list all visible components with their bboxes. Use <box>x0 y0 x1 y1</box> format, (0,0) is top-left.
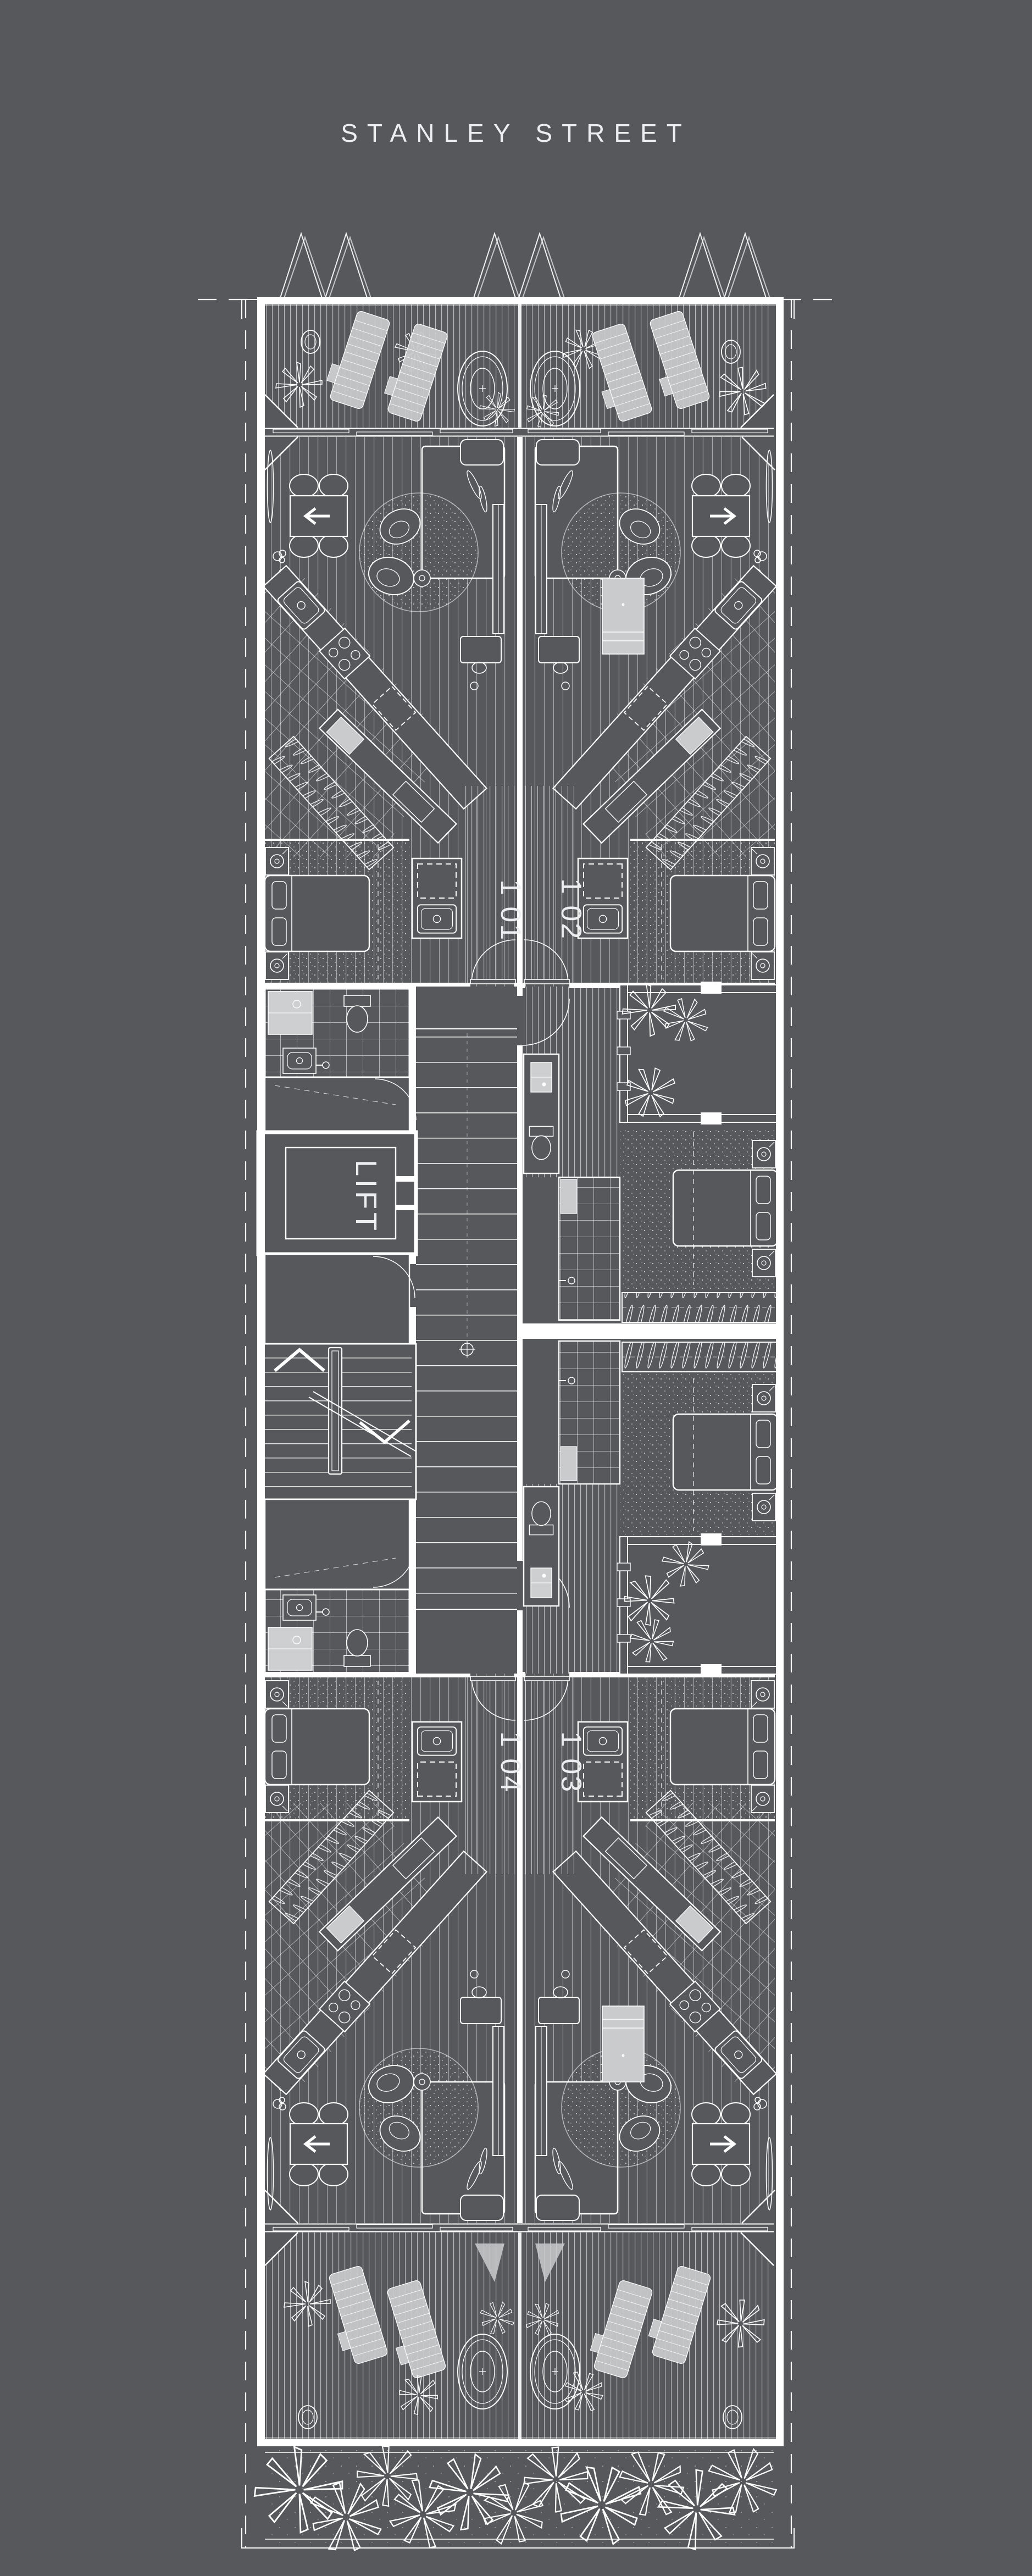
corridor-stair <box>416 987 517 1674</box>
store-room <box>265 1254 415 1344</box>
floor-plan-page: LIFT <box>0 0 1032 2576</box>
bathroom-upper <box>265 988 409 1077</box>
lift-lobby-upper <box>265 1077 416 1132</box>
bathroom-102 <box>559 1177 620 1320</box>
terrace-south <box>265 2232 776 2439</box>
bedroom-103b <box>620 1374 783 1535</box>
bed-icon <box>673 1170 778 1246</box>
unit-104-label: 1 04 <box>495 1731 526 1793</box>
bathroom-103 <box>559 1341 620 1484</box>
street-title: STANLEY STREET <box>341 119 691 147</box>
floor-plan-drawing: LIFT <box>0 0 1032 2576</box>
shower-icon <box>268 991 312 1034</box>
nightstand-icon <box>752 1493 775 1521</box>
lift-label: LIFT <box>349 1160 382 1234</box>
unit-103-label: 1 03 <box>555 1731 587 1793</box>
nightstand-icon <box>752 1249 775 1277</box>
unit-101-label: 1 01 <box>495 879 526 941</box>
courtyard-lower <box>612 1533 783 1676</box>
terrace-north <box>265 304 778 435</box>
core: LIFT <box>258 982 783 1676</box>
washer-icon <box>531 1568 552 1598</box>
lift: LIFT <box>258 1132 416 1254</box>
nightstand-icon <box>752 1140 775 1168</box>
nightstand-icon <box>752 1384 775 1412</box>
bed-icon <box>673 1414 778 1490</box>
bedroom-102b <box>620 1128 783 1289</box>
hall-103 <box>523 1484 620 1674</box>
fire-stair <box>258 1344 416 1499</box>
unit-102-label: 1 02 <box>555 878 587 940</box>
bathroom-lower <box>265 1589 409 1674</box>
shower-icon <box>268 1627 312 1670</box>
hall-102 <box>523 987 620 1177</box>
courtyard-upper <box>616 982 783 1126</box>
lift-lobby-lower <box>265 1499 415 1589</box>
washer-icon <box>531 1062 552 1092</box>
